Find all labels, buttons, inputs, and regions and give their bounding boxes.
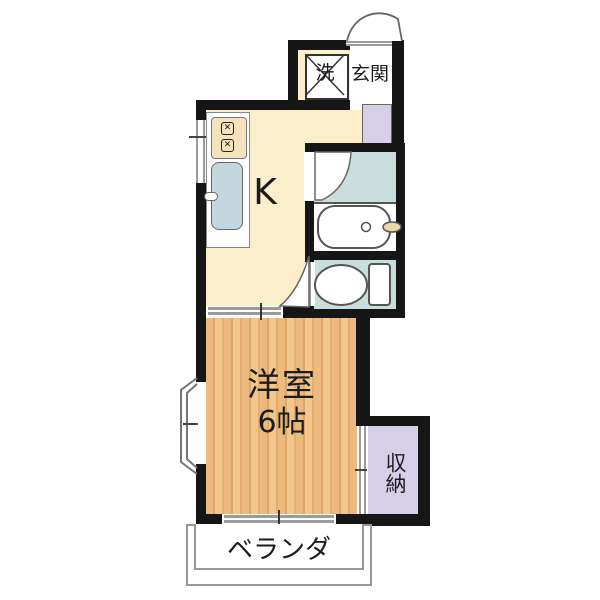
veranda-label: ベランダ — [194, 536, 364, 566]
storage-label: 収納 — [381, 438, 407, 508]
western-room-size-label: 6帖 — [232, 406, 332, 441]
floorplan: ✕ ✕ 洗 — [0, 0, 600, 600]
entrance-label: 玄関 — [347, 64, 393, 86]
entrance-door-arc-icon — [347, 13, 402, 41]
western-room-label: 洋室 — [232, 366, 332, 404]
bathroom-door-icon — [315, 152, 351, 200]
washer-label: 洗 — [305, 63, 345, 85]
toilet-door-icon — [280, 256, 309, 307]
room-window-icon — [181, 378, 198, 474]
bathtub-icon — [318, 206, 401, 248]
toilet-icon — [315, 264, 390, 305]
kitchen-label: K — [240, 172, 290, 213]
fixtures-overlay — [0, 0, 600, 600]
